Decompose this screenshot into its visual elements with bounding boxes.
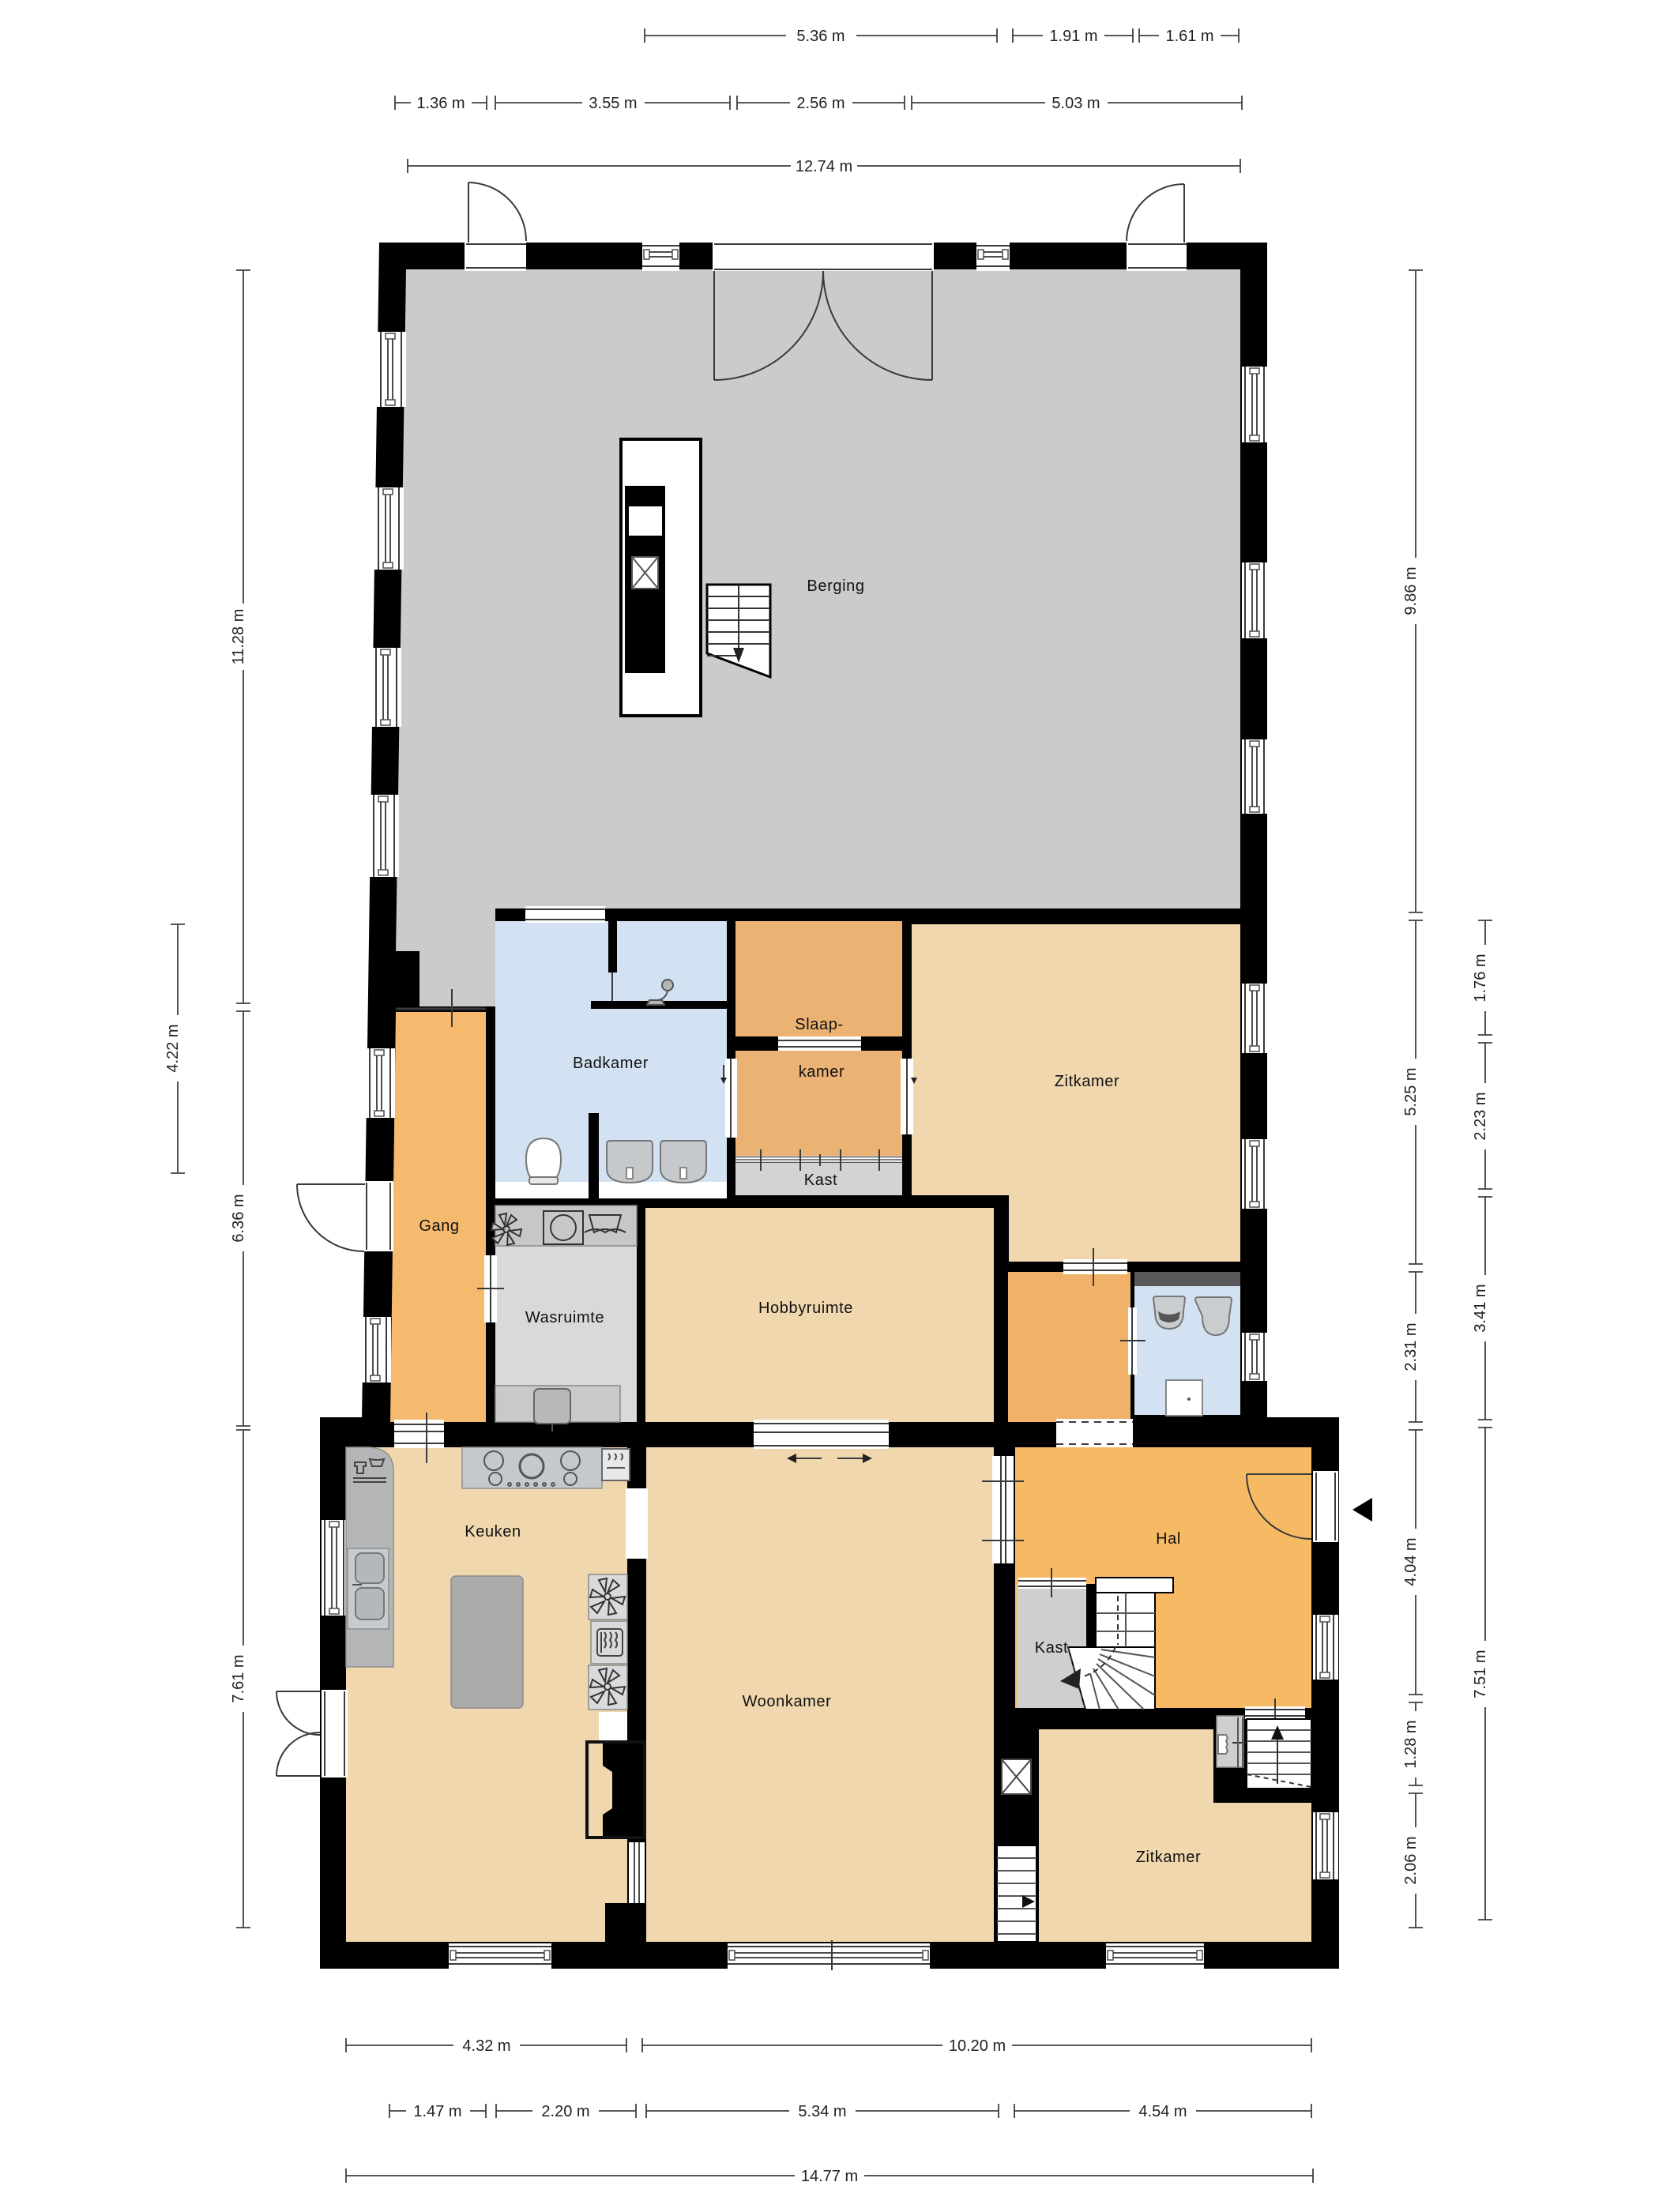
svg-text:Zitkamer: Zitkamer: [1055, 1073, 1120, 1090]
svg-text:1.61 m: 1.61 m: [1165, 28, 1213, 45]
svg-text:5.03 m: 5.03 m: [1051, 95, 1100, 112]
svg-text:Woonkamer: Woonkamer: [743, 1693, 832, 1710]
svg-text:5.34 m: 5.34 m: [798, 2103, 846, 2120]
svg-text:9.86 m: 9.86 m: [1402, 566, 1420, 615]
svg-text:2.23 m: 2.23 m: [1472, 1092, 1489, 1140]
svg-text:2.20 m: 2.20 m: [541, 2103, 589, 2120]
svg-text:Kast: Kast: [804, 1172, 837, 1189]
svg-text:12.74 m: 12.74 m: [796, 158, 852, 175]
svg-text:Berging: Berging: [807, 577, 864, 595]
svg-text:4.32 m: 4.32 m: [462, 2037, 510, 2055]
svg-text:Wasruimte: Wasruimte: [525, 1309, 604, 1326]
svg-text:7.61 m: 7.61 m: [230, 1654, 247, 1702]
svg-text:1.28 m: 1.28 m: [1402, 1720, 1420, 1768]
svg-text:4.04 m: 4.04 m: [1402, 1537, 1420, 1586]
svg-text:Hal: Hal: [1156, 1530, 1181, 1548]
svg-text:Hobbyruimte: Hobbyruimte: [758, 1300, 853, 1317]
svg-text:1.47 m: 1.47 m: [413, 2103, 461, 2120]
svg-text:11.28 m: 11.28 m: [230, 609, 247, 665]
svg-text:4.22 m: 4.22 m: [164, 1024, 182, 1072]
svg-text:10.20 m: 10.20 m: [949, 2037, 1006, 2055]
svg-text:Slaap-: Slaap-: [795, 1016, 843, 1033]
svg-text:4.54 m: 4.54 m: [1138, 2103, 1187, 2120]
svg-text:14.77 m: 14.77 m: [801, 2168, 858, 2185]
svg-text:5.36 m: 5.36 m: [796, 28, 845, 45]
svg-text:Kast: Kast: [1035, 1639, 1068, 1657]
svg-text:Badkamer: Badkamer: [573, 1055, 649, 1072]
svg-text:3.41 m: 3.41 m: [1472, 1284, 1489, 1332]
svg-text:5.25 m: 5.25 m: [1402, 1067, 1420, 1115]
svg-text:3.55 m: 3.55 m: [589, 95, 637, 112]
svg-text:Gang: Gang: [419, 1217, 459, 1235]
svg-text:6.36 m: 6.36 m: [230, 1194, 247, 1242]
svg-text:Zitkamer: Zitkamer: [1136, 1849, 1202, 1866]
svg-text:2.56 m: 2.56 m: [796, 95, 845, 112]
svg-text:kamer: kamer: [799, 1063, 845, 1081]
svg-text:2.06 m: 2.06 m: [1402, 1836, 1420, 1884]
svg-text:1.76 m: 1.76 m: [1472, 954, 1489, 1002]
svg-text:2.31 m: 2.31 m: [1402, 1322, 1420, 1371]
svg-text:Keuken: Keuken: [465, 1523, 521, 1540]
svg-text:1.91 m: 1.91 m: [1049, 28, 1097, 45]
svg-text:1.36 m: 1.36 m: [416, 95, 465, 112]
svg-text:7.51 m: 7.51 m: [1472, 1650, 1489, 1698]
